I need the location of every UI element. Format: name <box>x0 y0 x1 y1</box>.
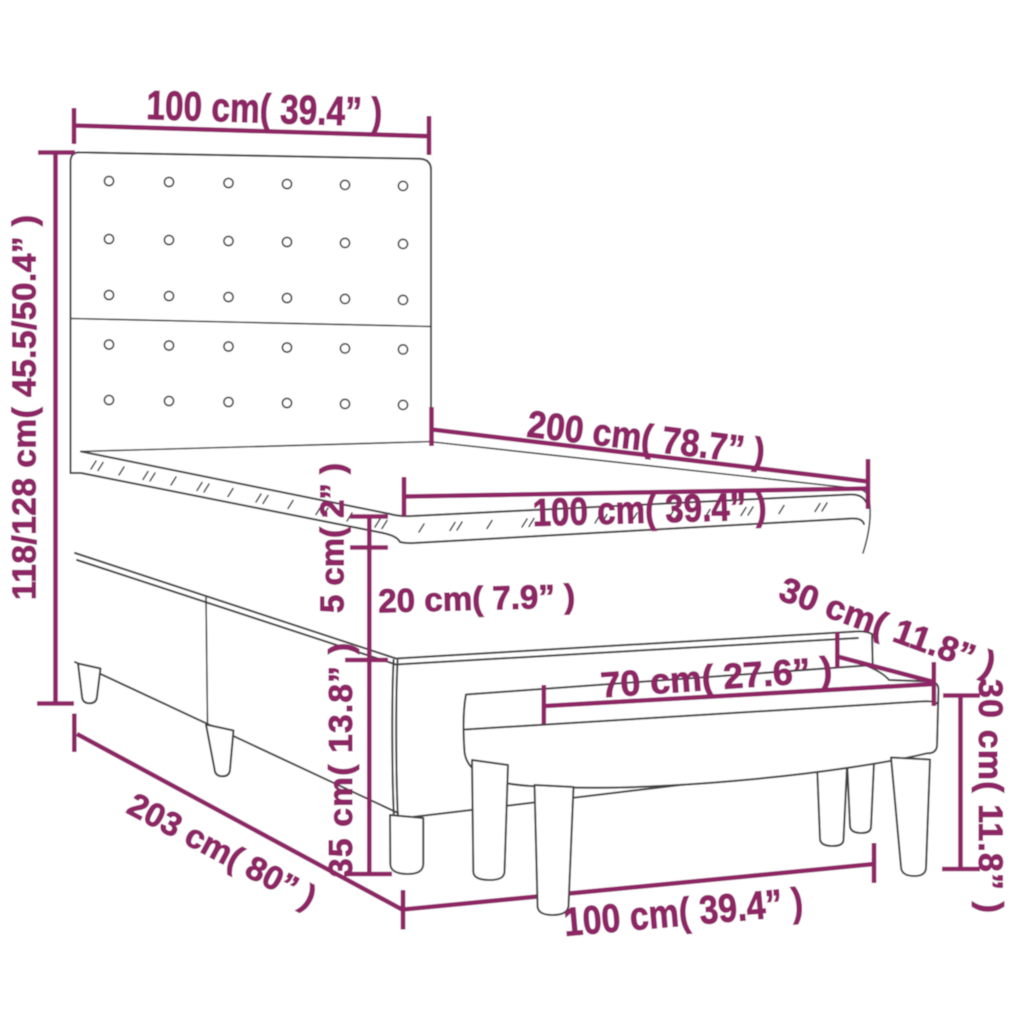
svg-text:100 cm( 39.4” ): 100 cm( 39.4” ) <box>532 485 767 535</box>
svg-text:35 cm( 13.8” ): 35 cm( 13.8” ) <box>323 643 360 877</box>
svg-text:5 cm( 2” ): 5 cm( 2” ) <box>314 463 351 613</box>
svg-text:30 cm( 11.8” ): 30 cm( 11.8” ) <box>971 679 1009 913</box>
svg-text:100 cm( 39.4” ): 100 cm( 39.4” ) <box>146 82 383 135</box>
svg-text:118/128 cm( 45.5/50.4” ): 118/128 cm( 45.5/50.4” ) <box>7 215 44 600</box>
svg-text:20 cm( 7.9” ): 20 cm( 7.9” ) <box>378 578 576 620</box>
